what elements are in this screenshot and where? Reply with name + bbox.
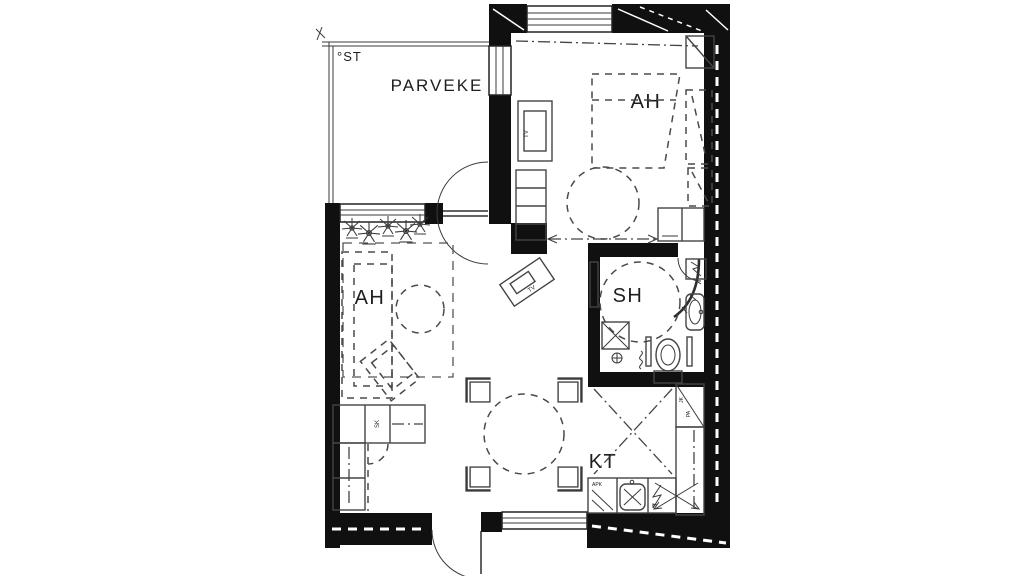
label-living: AH	[355, 287, 386, 309]
counter-right	[676, 427, 704, 515]
kitchen: KT JK PA APK	[588, 384, 704, 515]
turning-circle	[567, 167, 639, 239]
floor-drain	[612, 351, 642, 369]
dining-table	[484, 394, 564, 474]
window-living-balcony	[340, 204, 425, 222]
floorplan-svg: °ST PARVEKE	[0, 0, 1024, 576]
fridge: JK PA	[676, 384, 704, 427]
counter-bottom: APK	[588, 478, 676, 513]
door-swing-arc	[432, 530, 481, 576]
wall-bath-bottom	[588, 372, 706, 387]
label-tv-bedroom: TV	[524, 130, 530, 138]
closet-band: SK	[333, 405, 425, 443]
sink	[620, 480, 645, 510]
window-bottom	[502, 512, 587, 529]
alcove-zone	[343, 243, 453, 377]
exterior-walls	[325, 4, 730, 548]
entrance-door	[432, 530, 481, 576]
balcony: °ST PARVEKE	[316, 27, 489, 203]
label-cleaning-closet: SK	[375, 420, 381, 428]
label-st: °ST	[337, 49, 362, 64]
closet-bottom	[658, 208, 704, 241]
wall-balcony-bedroom-a	[489, 33, 511, 46]
turning-circle	[396, 285, 444, 333]
section-line	[548, 235, 657, 243]
bedroom: AH TV	[516, 36, 714, 243]
label-balcony: PARVEKE	[391, 76, 484, 95]
wall-bath-top	[588, 243, 678, 257]
window-bedroom-balcony	[489, 46, 511, 95]
floorplan-canvas: °ST PARVEKE	[0, 0, 1024, 576]
tv-cabinet: TV	[518, 101, 552, 161]
dishwasher: APK	[592, 482, 613, 511]
closet-door-swing	[368, 444, 388, 464]
label-kitchen: KT	[589, 451, 618, 473]
label-dishwasher: APK	[592, 482, 603, 488]
electrical-cabinet	[686, 259, 706, 279]
armchair-tilted	[360, 339, 419, 401]
door-swing-arc	[437, 162, 488, 264]
wall-balcony-pier	[425, 203, 443, 224]
dining-chair	[455, 367, 502, 414]
wall-bottom-pier	[481, 512, 502, 532]
drain-symbol	[640, 351, 643, 369]
sofa	[342, 252, 392, 398]
entry-closets: SK	[333, 405, 425, 511]
label-fridge-jk: JK	[679, 396, 685, 403]
label-shower-room: SH	[613, 285, 644, 307]
washing-machine	[602, 322, 629, 349]
label-bedroom: AH	[631, 91, 662, 113]
window-bedroom-top	[527, 6, 612, 32]
label-fridge-pa: PA	[686, 410, 692, 417]
balcony-door	[437, 162, 488, 264]
grab-bar	[687, 337, 692, 366]
corner-tick	[317, 27, 322, 40]
dining-set	[455, 367, 594, 503]
ceiling-slope-line	[516, 41, 698, 46]
bed	[592, 74, 680, 168]
wall-bottom-right	[587, 513, 730, 548]
dining-chair	[546, 367, 593, 414]
tv-desk: TV	[500, 258, 554, 306]
wall-balcony-bedroom-b	[489, 95, 511, 224]
